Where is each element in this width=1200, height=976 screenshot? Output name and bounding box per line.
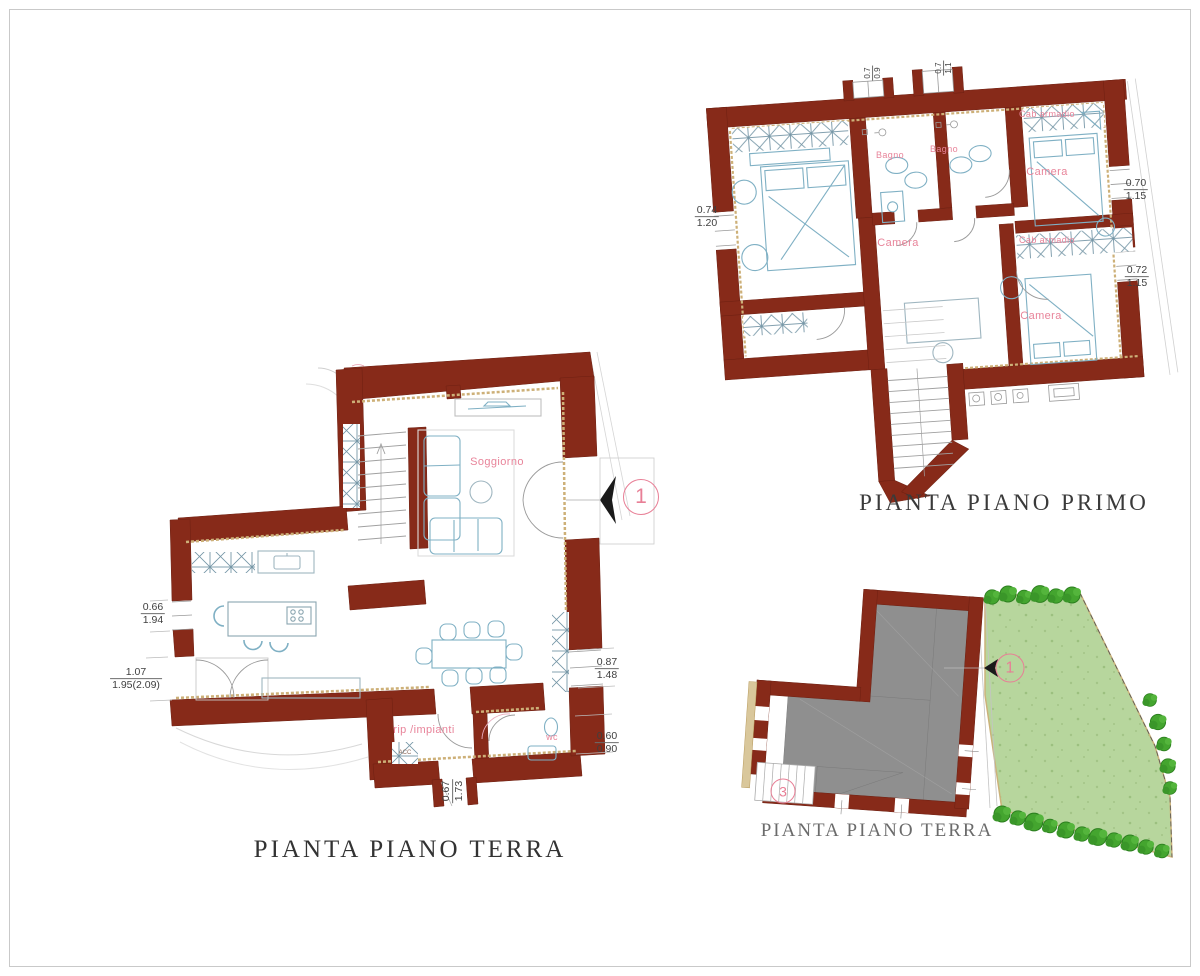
room-label-soggiorno: Soggiorno <box>470 456 524 468</box>
dim-ff-right-upper: 0.70 1.15 <box>1124 177 1148 203</box>
first-floor-title: PIANTA PIANO PRIMO <box>859 490 1149 516</box>
dim-value-bottom: 1.15 <box>1124 191 1148 203</box>
dim-value-top: 1.07 <box>110 666 162 679</box>
dim-gf-bottom: 0.67 1.73 <box>440 779 466 803</box>
site-plan <box>740 582 1177 858</box>
dim-value-bottom: 1.20 <box>695 218 719 230</box>
section-marker-1-ground: 1 <box>623 479 659 515</box>
dim-value-top: 0.70 <box>1124 177 1148 190</box>
dim-ff-top-left: 0.7 0.9 <box>863 65 883 80</box>
first-floor-plan <box>705 53 1186 513</box>
room-label-bagno-left: Bagno <box>876 150 904 160</box>
room-label-camera-center: Camera <box>877 237 919 249</box>
room-label-cab-armadio-mid: Cab armadio <box>1019 235 1075 245</box>
dim-value-bottom: 0.90 <box>595 744 619 756</box>
dim-gf-left-upper: 0.66 1.94 <box>141 601 165 627</box>
dim-value-bottom: 0.9 <box>874 65 883 80</box>
site-plan-title: PIANTA PIANO TERRA <box>761 820 994 842</box>
dim-value-top: 0.7 <box>863 65 873 80</box>
dim-ff-right-lower: 0.72 1.15 <box>1125 264 1149 290</box>
dim-value-bottom: 1.48 <box>595 670 619 682</box>
room-label-bagno-right: Bagno <box>930 144 958 154</box>
room-label-camera-right-top: Camera <box>1026 166 1068 178</box>
dim-value-top: 0.67 <box>440 779 453 803</box>
dim-value-top: 0.74 <box>695 204 719 217</box>
site-marker-3: 3 <box>771 779 796 804</box>
dim-value-bottom: 1.15 <box>1125 278 1149 290</box>
room-label-wc: wc <box>546 732 558 742</box>
dim-ff-top-right: 0.7 1.1 <box>934 60 954 75</box>
dim-value-top: 0.60 <box>595 730 619 743</box>
dim-value-top: 0.72 <box>1125 264 1149 277</box>
room-label-camera-right-bottom: Camera <box>1020 310 1062 322</box>
room-label-acc: ACC <box>399 750 412 756</box>
dim-value-top: 0.66 <box>141 601 165 614</box>
dim-value-bottom: 1.95(2.09) <box>110 680 162 692</box>
dim-gf-right-upper: 0.87 1.48 <box>595 656 619 682</box>
dim-ff-left: 0.74 1.20 <box>695 204 719 230</box>
dim-value-bottom: 1.73 <box>454 779 466 803</box>
dim-value-bottom: 1.94 <box>141 615 165 627</box>
dim-gf-right-lower: 0.60 0.90 <box>595 730 619 756</box>
dining-chairs <box>416 621 522 686</box>
dim-value-top: 0.87 <box>595 656 619 669</box>
drawing-sheet: Soggiorno rip /impianti wc ACC 0.66 1.94… <box>0 0 1200 976</box>
ground-floor-title: PIANTA PIANO TERRA <box>254 836 567 864</box>
ground-floor-plan <box>146 352 654 807</box>
dim-gf-left-lower: 1.07 1.95(2.09) <box>110 666 162 692</box>
room-label-cab-armadio-top: Cab armadio <box>1019 109 1075 119</box>
dim-value-bottom: 1.1 <box>945 60 954 75</box>
room-label-rip-impianti: rip /impianti <box>393 724 454 736</box>
site-marker-1: 1 <box>996 654 1025 683</box>
dim-value-top: 0.7 <box>934 60 944 75</box>
plans-canvas <box>0 0 1200 976</box>
